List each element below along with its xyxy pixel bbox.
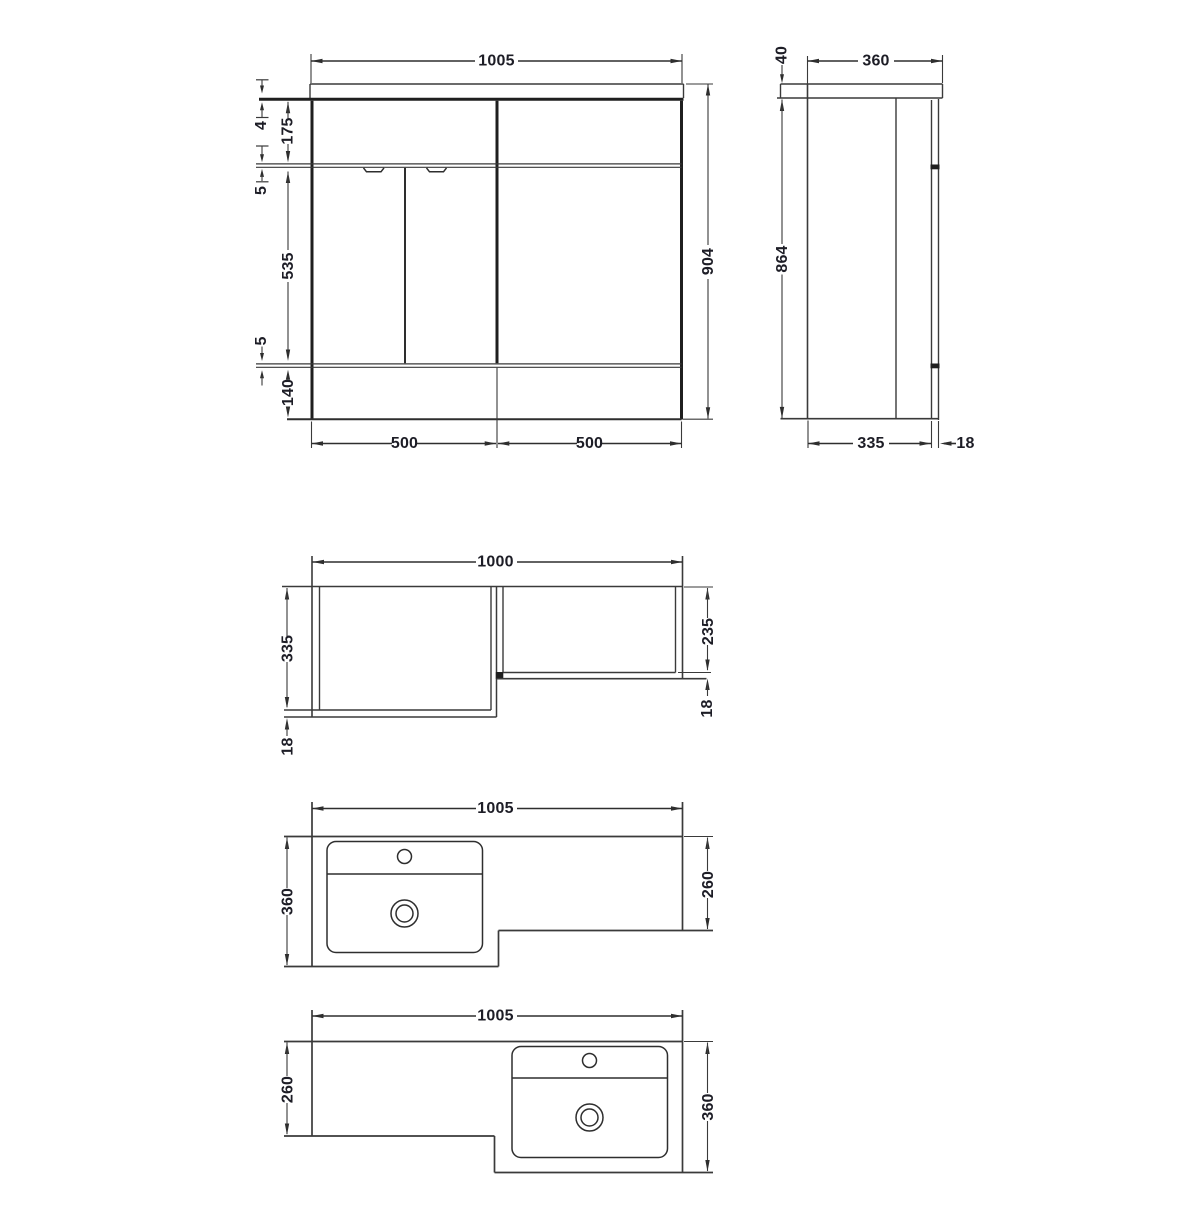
svg-text:18: 18 bbox=[280, 737, 297, 755]
svg-text:18: 18 bbox=[956, 435, 974, 452]
svg-text:175: 175 bbox=[280, 117, 297, 144]
svg-text:535: 535 bbox=[280, 252, 297, 279]
svg-text:1000: 1000 bbox=[477, 554, 513, 571]
svg-text:904: 904 bbox=[700, 248, 717, 275]
svg-text:335: 335 bbox=[857, 435, 884, 452]
svg-text:1005: 1005 bbox=[477, 800, 513, 817]
svg-text:864: 864 bbox=[774, 245, 791, 272]
svg-text:40: 40 bbox=[774, 46, 791, 64]
svg-text:335: 335 bbox=[280, 635, 297, 662]
svg-text:360: 360 bbox=[280, 888, 297, 915]
svg-text:18: 18 bbox=[699, 699, 716, 717]
svg-text:140: 140 bbox=[280, 379, 297, 406]
svg-text:360: 360 bbox=[700, 1093, 717, 1120]
svg-text:5: 5 bbox=[253, 186, 270, 195]
svg-text:1005: 1005 bbox=[477, 1008, 513, 1025]
svg-text:5: 5 bbox=[253, 336, 270, 345]
svg-text:500: 500 bbox=[576, 435, 603, 452]
svg-text:500: 500 bbox=[391, 435, 418, 452]
svg-text:360: 360 bbox=[862, 53, 889, 70]
svg-text:4: 4 bbox=[253, 121, 270, 130]
svg-text:260: 260 bbox=[280, 1076, 297, 1103]
svg-text:1005: 1005 bbox=[478, 53, 514, 70]
svg-text:260: 260 bbox=[700, 871, 717, 898]
svg-text:235: 235 bbox=[700, 618, 717, 645]
